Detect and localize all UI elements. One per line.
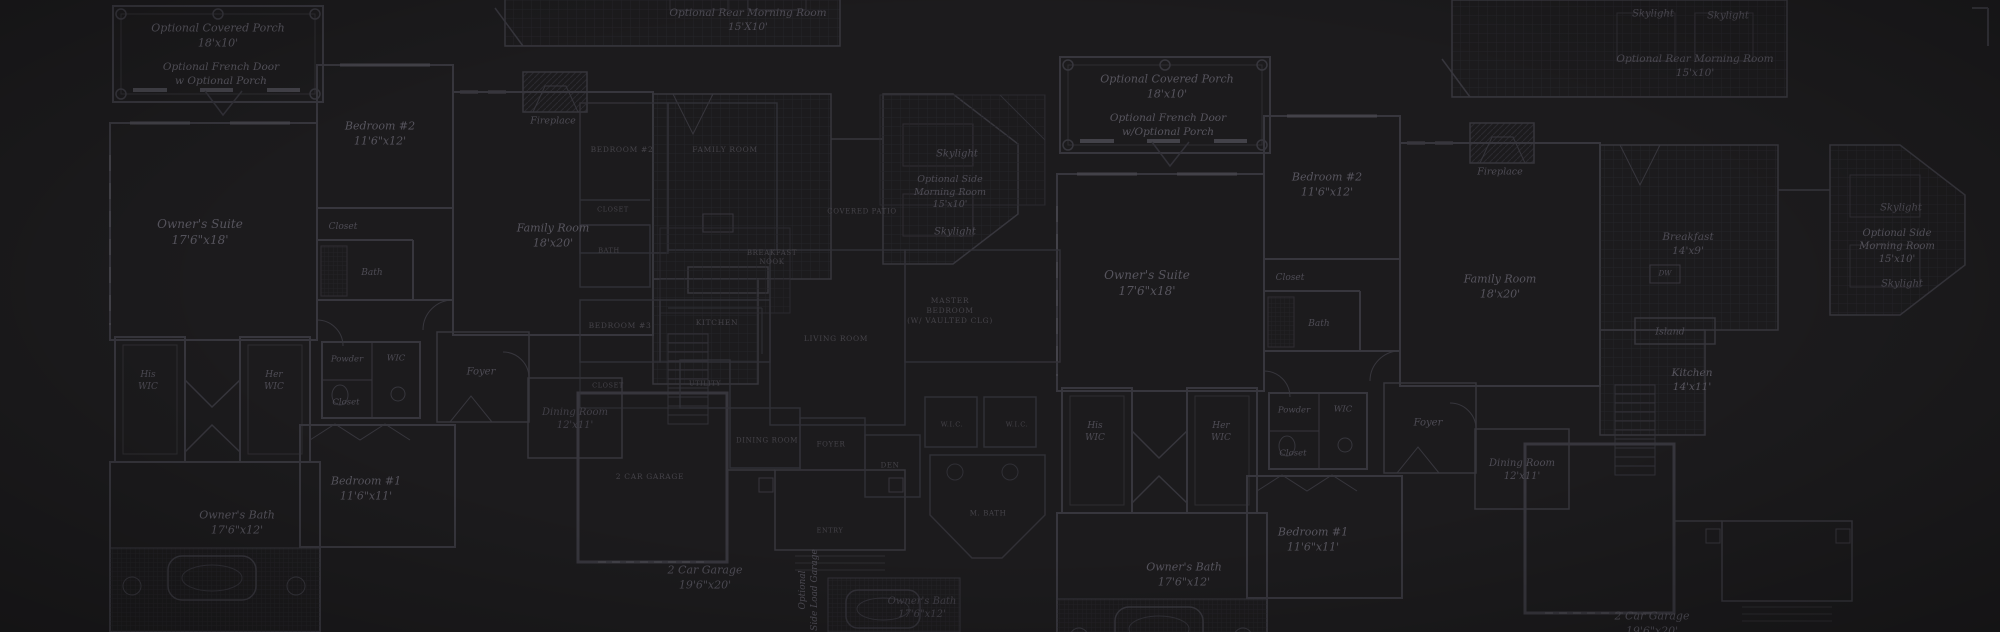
vignette-overlay (0, 0, 2000, 632)
floorplan-canvas: Optional Covered Porch 18'x10'Optional F… (0, 0, 2000, 632)
